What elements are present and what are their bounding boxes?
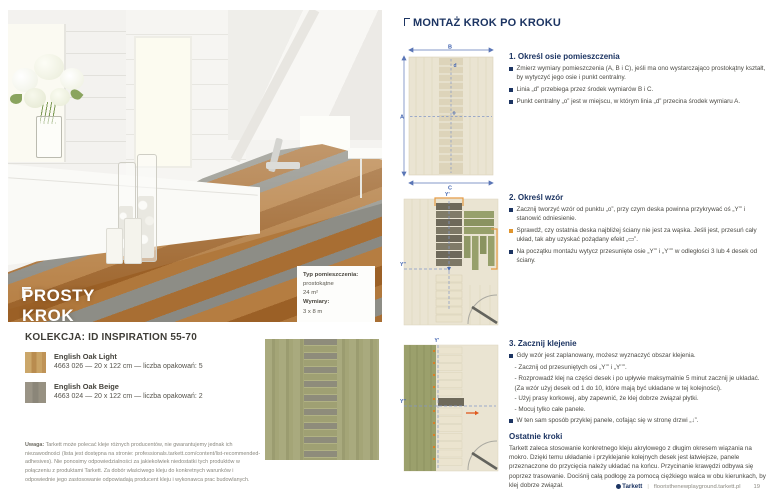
bullet: - Mocuj tylko całe panele. [509, 406, 766, 415]
step-1: B A C d o 1. Określ osie pomieszczenia Z… [400, 44, 766, 195]
candle [106, 228, 123, 264]
dim-label-b: B [448, 45, 452, 51]
hero-photo: PROSTY KROK Typ pomieszczenia: prostokąt… [8, 10, 382, 322]
axis-label-y1: Y’ [445, 192, 450, 198]
bullet: - Rozprowadź klej na części desek i po u… [509, 375, 766, 384]
bullet: Zacznij tworzyć wzór od punktu „o”, przy… [509, 206, 766, 224]
bullet: - Zacznij od przesuniętych osi „Y’” i „Y… [509, 364, 766, 373]
square-bullet-icon [509, 419, 513, 423]
bullet: Na początku montażu wytycz przesunięte o… [509, 248, 766, 266]
bullet: Punkt centralny „o” jest w miejscu, w kt… [509, 98, 766, 107]
floor-pattern-image [265, 339, 379, 460]
bullet: (Za wzór użyj desek od 1 do 10, które ma… [509, 385, 766, 394]
step-1-diagram: B A C d o [400, 44, 502, 195]
product-details: 4663 024 — 20 x 122 cm — liczba opakowań… [54, 392, 203, 402]
square-bullet-icon [509, 354, 513, 358]
square-bullet-icon [509, 100, 513, 104]
step-3-text: 3. Zacznij klejenie Gdy wzór jest zaplan… [509, 335, 766, 490]
flower [50, 88, 70, 106]
axis-label-d: d [454, 63, 457, 69]
page-number: 19 [754, 484, 760, 490]
collection-section: KOLEKCJA: ID INSPIRATION 55-70 English O… [25, 332, 260, 403]
installation-title-text: MONTAŻ KROK PO KROKU [413, 17, 561, 29]
bullet: Sprawdź, czy ostatnia deska najbliżej śc… [509, 227, 766, 245]
footer-separator: | [647, 484, 649, 490]
corner-mark-icon [404, 18, 410, 26]
window [134, 36, 192, 168]
tarkett-logo: Tarkett [616, 483, 643, 490]
flower [24, 88, 46, 108]
step-1-text: 1. Określ osie pomieszczenia Zmierz wymi… [509, 44, 766, 111]
product-swatch [25, 352, 46, 373]
leaf [10, 94, 22, 104]
product-row: English Oak Beige 4663 024 — 20 x 122 cm… [25, 382, 260, 403]
bullet: Linia „d” przebiega przez środek wymiaró… [509, 86, 766, 95]
square-bullet-icon [509, 250, 513, 254]
step-3: Y’ Y’’ 3. Zacznij klejenie Gdy wzór jest… [400, 335, 766, 490]
tarkett-logo-icon [616, 484, 621, 489]
bullet: - Użyj prasy korkowej, aby zapewnić, że … [509, 395, 766, 404]
floor-pattern-accent-column [304, 339, 337, 460]
axis-label-y2: Y’’ [400, 262, 407, 268]
square-bullet-icon [509, 208, 513, 212]
axis-label-y1: Y’ [435, 338, 440, 344]
footer-url: flooristhenewplayground.tarkett.pl [654, 484, 741, 490]
step-2-heading: 2. Określ wzór [509, 193, 766, 202]
step-2: Y’ Y’’ 2. Określ wzór Zacznij tworzyć wz… [400, 189, 766, 336]
chair [266, 162, 300, 169]
square-bullet-icon [509, 67, 513, 71]
console-leg [360, 158, 362, 198]
disclaimer-label: Uwaga: [25, 442, 44, 448]
step-2-text: 2. Określ wzór Zacznij tworzyć wzór od p… [509, 189, 766, 269]
disclaimer-text: Tarkett może polecać kleje różnych produ… [25, 442, 260, 483]
disclaimer-note: Uwaga: Tarkett może polecać kleje różnyc… [25, 441, 265, 484]
bullet: Gdy wzór jest zaplanowany, możesz wyznac… [509, 352, 766, 361]
room-dims-value: 3 x 8 m [303, 308, 369, 317]
center-label-o: o [453, 111, 456, 117]
product-details: 4663 026 — 20 x 122 cm — liczba opakowań… [54, 362, 203, 372]
axis-label-y2: Y’’ [400, 399, 407, 405]
console-table [348, 148, 382, 159]
bullet: Zmierz wymiary pomieszczenia (A, B i C),… [509, 65, 766, 83]
step-3-heading: 3. Zacznij klejenie [509, 339, 766, 348]
product-swatch [25, 382, 46, 403]
room-info-box: Typ pomieszczenia: prostokątne 24 m² Wym… [297, 266, 375, 322]
hero-title-text: PROSTY KROK [22, 286, 95, 322]
room-area: 24 m² [303, 289, 369, 298]
flower [60, 68, 84, 90]
room-type-value: prostokątne [303, 280, 369, 289]
flower-vase [36, 116, 62, 158]
step-1-heading: 1. Określ osie pomieszczenia [509, 52, 766, 61]
final-steps-heading: Ostatnie kroki [509, 432, 766, 441]
candle [124, 218, 142, 264]
bullet: W ten sam sposób przyklej panele, cofają… [509, 417, 766, 426]
step-2-diagram: Y’ Y’’ [400, 189, 502, 336]
square-bullet-icon [509, 88, 513, 92]
room-type-label: Typ pomieszczenia: [303, 271, 369, 280]
page-footer: Tarkett | flooristhenewplayground.tarket… [616, 483, 760, 490]
tarkett-logo-text: Tarkett [622, 483, 642, 490]
product-name: English Oak Light [54, 352, 203, 362]
dim-label-a: A [400, 115, 404, 121]
product-row: English Oak Light 4663 026 — 20 x 122 cm… [25, 352, 260, 373]
installation-title: MONTAŻ KROK PO KROKU [404, 17, 561, 29]
collection-title: KOLEKCJA: ID INSPIRATION 55-70 [25, 332, 260, 343]
square-bullet-icon [509, 229, 513, 233]
room-dims-label: Wymiary: [303, 298, 369, 307]
step-3-diagram: Y’ Y’’ [400, 335, 502, 482]
product-name: English Oak Beige [54, 382, 203, 392]
